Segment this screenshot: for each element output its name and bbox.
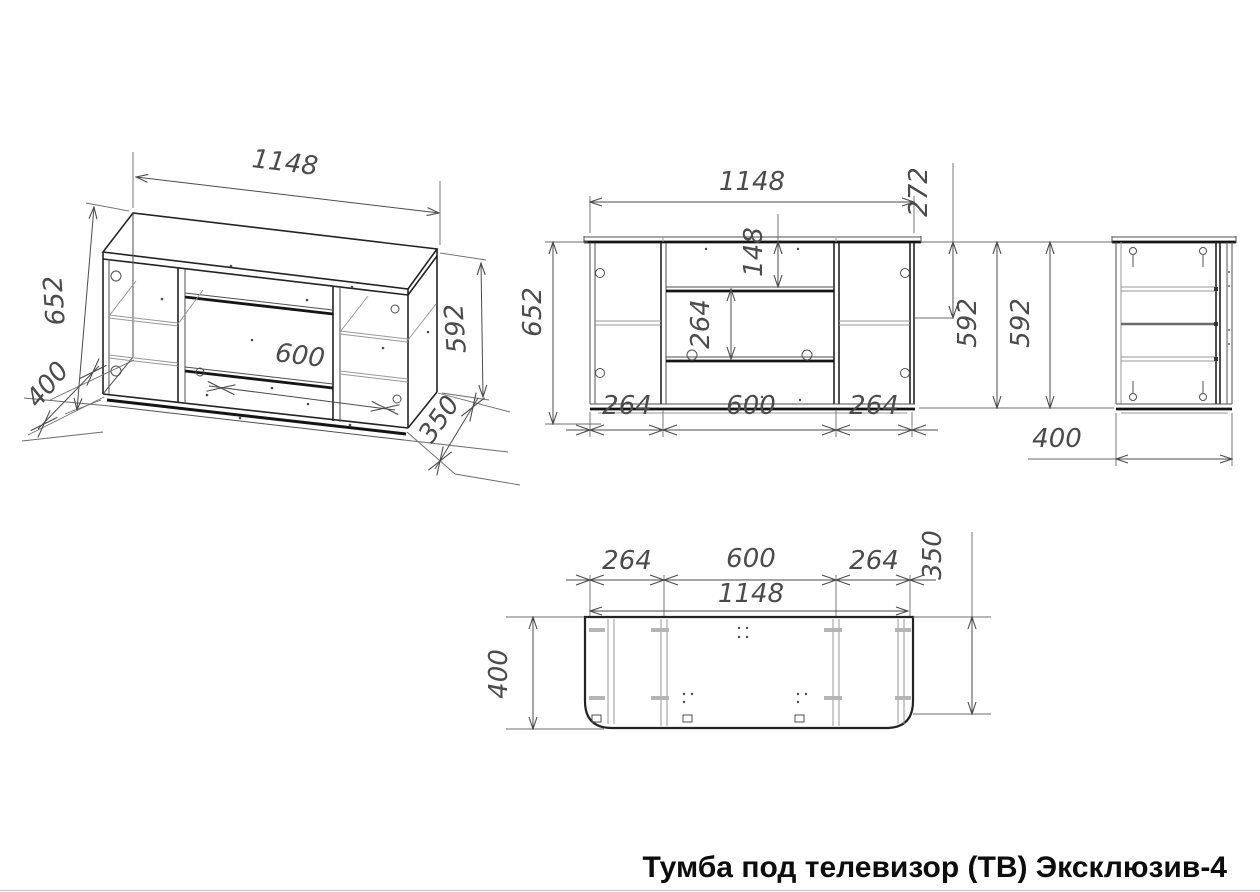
bolt-icon: [1200, 394, 1207, 401]
front-dim-right-section-label: 264: [849, 391, 899, 421]
cam-fitting-icon: [596, 269, 605, 278]
fitting-dots: [1228, 271, 1230, 345]
shelf-pin: [1214, 287, 1218, 291]
side-dim-height-label: 592: [1006, 298, 1036, 348]
side-dim-depth: 400: [1028, 413, 1232, 466]
iso-dim-width-label: 1148: [250, 144, 319, 182]
iso-dim-depth-front: 350: [407, 390, 520, 485]
iso-dim-depth-label: 400: [20, 356, 75, 413]
side-view: 592 400: [1006, 236, 1236, 466]
plan-view: 264 600 264 1148 350 400: [484, 530, 991, 729]
cam-fitting-icon: [901, 369, 910, 378]
cam-fitting-icon: [393, 395, 401, 403]
blueprint-sheet: 1148 652 400 592: [0, 0, 1260, 892]
iso-dim-depth: 400: [20, 356, 134, 437]
bolt-icon: [1130, 248, 1137, 255]
iso-dim-width: 1148: [133, 144, 440, 245]
plan-dim-width: 1148: [590, 579, 908, 611]
front-dim-height: 652: [518, 242, 601, 424]
shelf-pin: [1214, 322, 1218, 326]
side-dim-height: 592: [1006, 242, 1050, 408]
blueprint-svg: 1148 652 400 592: [0, 0, 1260, 892]
cam-fitting-icon: [802, 350, 812, 360]
front-dim-left-section-label: 264: [602, 391, 652, 421]
cam-fitting-icon: [111, 366, 121, 376]
leg-mount: [592, 715, 601, 722]
cam-fitting-icon: [391, 305, 399, 313]
front-dim-niche-height: 264: [686, 289, 731, 359]
front-dim-148: 148: [739, 214, 778, 287]
cam-fitting-icon: [111, 271, 121, 281]
front-dim-272-label: 272: [904, 167, 934, 217]
cam-fitting-icon: [596, 369, 605, 378]
side-dim-depth-label: 400: [1032, 424, 1082, 454]
iso-dim-height-label: 652: [38, 275, 71, 327]
drawing-title: Тумба под телевизор (ТВ) Эксклюзив-4: [643, 851, 1228, 884]
iso-dim-depth-front-label: 350: [413, 390, 466, 448]
isometric-view: 1148 652 400 592: [20, 144, 520, 485]
iso-dim-niche-width-label: 600: [274, 338, 327, 374]
plan-cabinet-drawing: [585, 617, 913, 728]
front-dim-niche-height-label: 264: [686, 299, 716, 349]
front-dim-148-label: 148: [739, 227, 769, 277]
plan-dim-depth-front: 350: [913, 530, 991, 714]
leg-mount: [683, 715, 692, 722]
plan-dim-depth-label: 400: [484, 649, 514, 699]
plan-dim-width-label: 1148: [718, 579, 784, 609]
cam-fitting-icon: [901, 269, 910, 278]
plan-dim-left-section-label: 264: [602, 546, 652, 576]
iso-top-panel: [103, 213, 437, 289]
bolt-icon: [1130, 394, 1137, 401]
connector-marks: [589, 630, 911, 698]
bolt-icon: [1200, 248, 1207, 255]
shelf-pin: [1214, 357, 1218, 361]
side-cabinet-drawing: [1112, 236, 1236, 413]
front-dim-side-height-label: 592: [953, 298, 983, 348]
plan-dim-niche-width-label: 600: [726, 544, 776, 574]
plan-dim-right-section-label: 264: [849, 546, 899, 576]
cam-fitting-icon: [687, 350, 697, 360]
plan-dim-depth-front-label: 350: [918, 530, 948, 580]
leg-mount: [795, 715, 804, 722]
iso-dim-side-height-label: 592: [439, 303, 472, 355]
front-dim-bottom-chain: 264 600 264: [566, 391, 938, 437]
iso-dim-side-height: 592: [439, 253, 489, 400]
front-dim-272: 272: [904, 163, 953, 318]
front-dim-width: 1148: [590, 167, 914, 233]
plan-outline: [585, 617, 913, 728]
front-dim-niche-width-label: 600: [726, 391, 776, 421]
fitting-dots: [683, 627, 807, 703]
front-dim-width-label: 1148: [719, 167, 785, 197]
front-dim-height-label: 652: [518, 287, 548, 337]
